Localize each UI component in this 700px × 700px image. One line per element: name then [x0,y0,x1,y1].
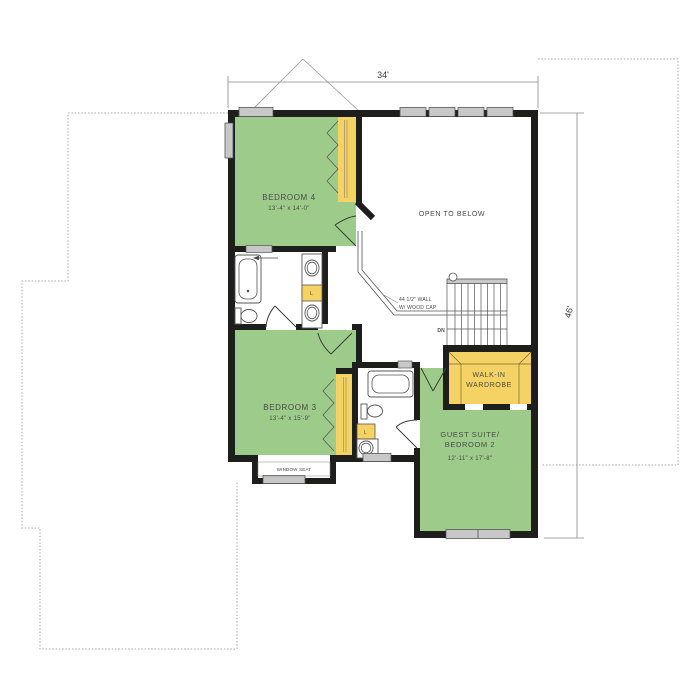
bedroom3-closet [336,374,352,455]
floor-plan-drawing: 34' 46' [0,0,700,700]
roof-outline-right [538,59,678,465]
bedroom4-room [235,117,356,246]
half-wall-note-line2: W/ WOOD CAP [399,305,437,311]
window [429,108,455,117]
bedroom4-label: BEDROOM 4 [262,193,315,202]
bathtub-drain [247,290,250,293]
window [458,108,484,117]
stairs [447,273,507,345]
toilet-tank [361,404,367,419]
linen-label: L [310,291,313,297]
floor-plan: 34' 46' [0,0,700,700]
stair-newel [449,273,457,281]
window [239,108,273,117]
linen-label: L [364,430,367,436]
bedroom4-size: 13'-4" x 14'-0" [268,206,309,212]
bathroom1-door [266,306,296,327]
guest-suite-label-line1: GUEST SUITE/ [440,430,499,439]
wall-diagonal-bedroom4 [357,202,373,218]
bathroom1-fixtures [235,246,322,329]
toilet-tank [235,308,241,324]
pocket-door [246,246,272,253]
guest-suite-size: 12'-11" x 17'-8" [448,456,493,462]
window [400,108,426,117]
bedroom3-label: BEDROOM 3 [263,403,316,412]
window [225,123,233,158]
bathroom2-door [396,420,417,448]
wardrobe-label-line2: WARDROBE [466,382,512,389]
open-to-below-label: OPEN TO BELOW [419,211,485,218]
stairs-dn-label: DN [437,328,445,334]
half-wall-leader-line [382,294,398,303]
width-dimension-label: 34' [377,70,389,80]
bay-window [263,476,305,484]
window-seat-label: WINDOW SEAT [277,467,312,472]
window [363,454,391,462]
half-wall [358,231,507,315]
guest-suite-label-line2: BEDROOM 2 [445,440,495,449]
gable-outline [250,59,360,112]
toilet [368,405,383,417]
bathroom2-fixtures [357,361,413,458]
wardrobe-label-line1: WALK-IN [472,372,505,379]
half-wall-note-line1: 44 1/2" WALL [399,297,432,303]
toilet [241,310,257,323]
pocket-door [398,361,412,368]
height-dimension-label: 46' [563,305,576,319]
bedroom3-size: 13'-4" x 15'-9" [269,416,310,422]
window [487,108,513,117]
roof-outline-left [22,113,237,649]
